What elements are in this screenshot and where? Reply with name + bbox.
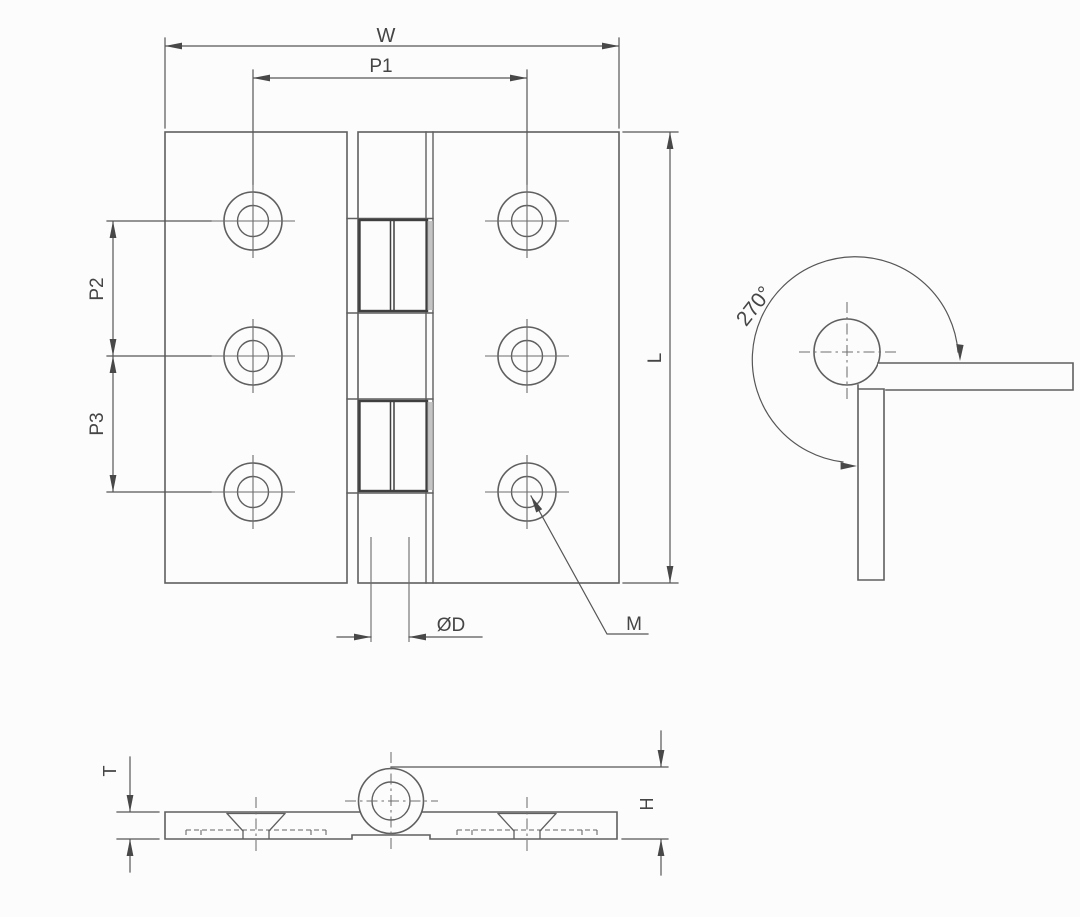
left-leaf-outline: [165, 132, 347, 583]
knuckle-lower-pin-lines: [391, 402, 395, 490]
dimension-p2-p3: P2 P3: [87, 221, 211, 492]
label-thickness: T: [100, 766, 120, 777]
arrowhead: [110, 356, 117, 373]
barrel-right-edges: [426, 132, 433, 583]
screw-hole-top-right: [485, 184, 569, 258]
label-p3: P3: [87, 412, 108, 435]
arrowhead: [602, 43, 619, 50]
arrowhead: [658, 839, 665, 856]
front-view: W P1 P2 P3 L: [87, 25, 678, 642]
hole-crosshair: [485, 319, 569, 393]
screw-hole-mid-right: [485, 319, 569, 393]
knuckle-upper-shading: [428, 221, 434, 310]
label-width: W: [377, 25, 396, 47]
label-opening-angle: 270°: [732, 282, 777, 330]
dimension-p1-lines: [253, 70, 527, 184]
arrowhead: [110, 475, 117, 492]
screw-hole-bottom-right: [485, 455, 569, 529]
label-p1: P1: [369, 56, 392, 77]
arrowhead: [127, 795, 134, 812]
dimension-thickness: T: [100, 757, 159, 872]
hole-crosshair: [211, 184, 295, 258]
arrowhead: [110, 339, 117, 356]
arrowhead: [956, 344, 963, 361]
screw-hole-top-left: [211, 184, 295, 258]
arrowhead: [667, 566, 674, 583]
right-leaf-and-barrel-outline: [358, 132, 619, 583]
horizontal-leaf-fill: [878, 363, 1073, 390]
knuckle-lower: [360, 401, 434, 491]
label-mounting-hole: M: [626, 614, 642, 635]
arrowhead: [354, 634, 371, 641]
dimension-width-lines: [165, 38, 619, 128]
arrowhead: [253, 75, 270, 82]
arrowhead: [510, 75, 527, 82]
hole-crosshair: [211, 455, 295, 529]
arrowhead: [667, 132, 674, 149]
hole-crosshair: [485, 184, 569, 258]
dimension-height-lines: [391, 731, 668, 875]
hole-crosshair: [485, 455, 569, 529]
rotation-view: 270°: [732, 257, 1073, 580]
arrowhead: [409, 634, 426, 641]
arrowhead: [841, 462, 857, 469]
bottom-view: T H: [100, 731, 668, 875]
dimension-p1: P1: [253, 56, 527, 184]
knuckle-upper-pin-lines: [391, 221, 395, 310]
countersink-right: [457, 797, 597, 853]
screw-hole-bottom-left: [211, 455, 295, 529]
leader-mounting-hole: M: [531, 496, 648, 635]
arrowhead: [658, 750, 665, 767]
label-length: L: [645, 353, 666, 364]
pin-bore-lines: [371, 537, 409, 642]
dimension-p2-p3-lines: [107, 221, 211, 492]
vertical-leaf-fill: [858, 385, 884, 580]
dimension-thickness-lines: [117, 757, 159, 872]
arrowhead: [127, 839, 134, 856]
knuckle-upper: [360, 220, 434, 311]
label-knuckle-height: H: [637, 798, 657, 811]
dimension-length: L: [623, 132, 678, 583]
screw-hole-mid-left: [211, 319, 295, 393]
label-pin-diameter: ØD: [437, 615, 466, 636]
knuckle-lower-shading: [428, 402, 434, 490]
arrowhead: [165, 43, 182, 50]
label-p2: P2: [87, 277, 108, 300]
arrowhead: [110, 221, 117, 238]
countersink-left: [186, 797, 326, 853]
hinge-technical-drawing: W P1 P2 P3 L: [0, 0, 1080, 917]
hole-crosshair: [211, 319, 295, 393]
dimension-knuckle-height: H: [391, 731, 668, 875]
drawing-sheet: W P1 P2 P3 L: [0, 0, 1080, 917]
